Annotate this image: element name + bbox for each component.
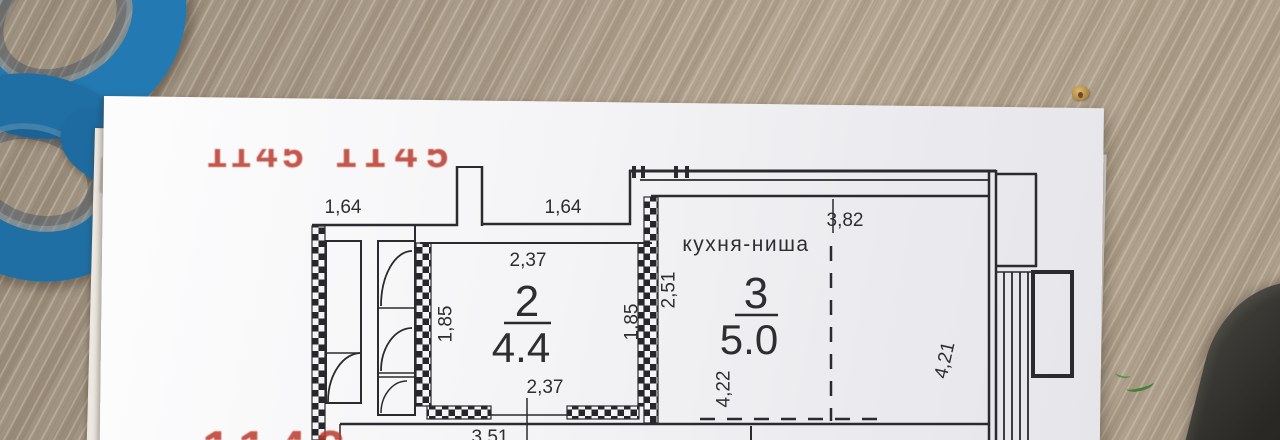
red-stamp-top: 11451145 — [206, 149, 506, 178]
door-swing-arc — [381, 251, 412, 306]
dim-room2-depth-right: 1,85 — [622, 304, 643, 341]
room2-number: 2 — [515, 277, 539, 326]
photo-scene: 1,64 1,64 2,37 1,85 1,85 2,51 3,82 4,22 … — [0, 0, 1280, 440]
dim-top-mid-opening: 1,64 — [545, 197, 582, 218]
hatched-walls — [312, 197, 658, 440]
room3-area: 5.0 — [720, 316, 778, 363]
room2-area: 4.4 — [492, 324, 550, 371]
stamp-number-bottom: 1148 — [202, 424, 355, 440]
dim-room3-left: 2,51 — [659, 272, 680, 309]
door-swing-arc — [381, 381, 407, 413]
dim-room2-depth-left: 1,85 — [436, 306, 457, 343]
floor-plan-drawing: 1,64 1,64 2,37 1,85 1,85 2,51 3,82 4,22 … — [0, 0, 1280, 440]
dim-room2-width-bottom: 2,37 — [527, 377, 564, 398]
door-swing-arc — [328, 353, 361, 402]
stamp-number-top-right: 1145 — [334, 149, 457, 176]
balcony-box — [1033, 272, 1072, 376]
dim-room3-right: 4,21 — [931, 340, 960, 381]
stamp-number-top-left: 1145 — [206, 149, 308, 176]
dim-room3-width-top: 3,82 — [827, 210, 864, 231]
room3-number: 3 — [744, 269, 768, 318]
dim-lower-room-width: 3,51 — [472, 427, 509, 440]
room3-name: кухня-ниша — [682, 233, 809, 256]
balcony-glazing — [1004, 272, 1072, 440]
red-stamp-bottom: 1148 — [202, 424, 462, 440]
dim-room2-width-top: 2,37 — [510, 250, 547, 271]
dim-top-left-opening: 1,64 — [325, 197, 362, 218]
door-swing-arc — [381, 328, 412, 371]
dim-room3-bottom-left: 4,22 — [714, 371, 735, 408]
closet-section — [326, 241, 415, 415]
